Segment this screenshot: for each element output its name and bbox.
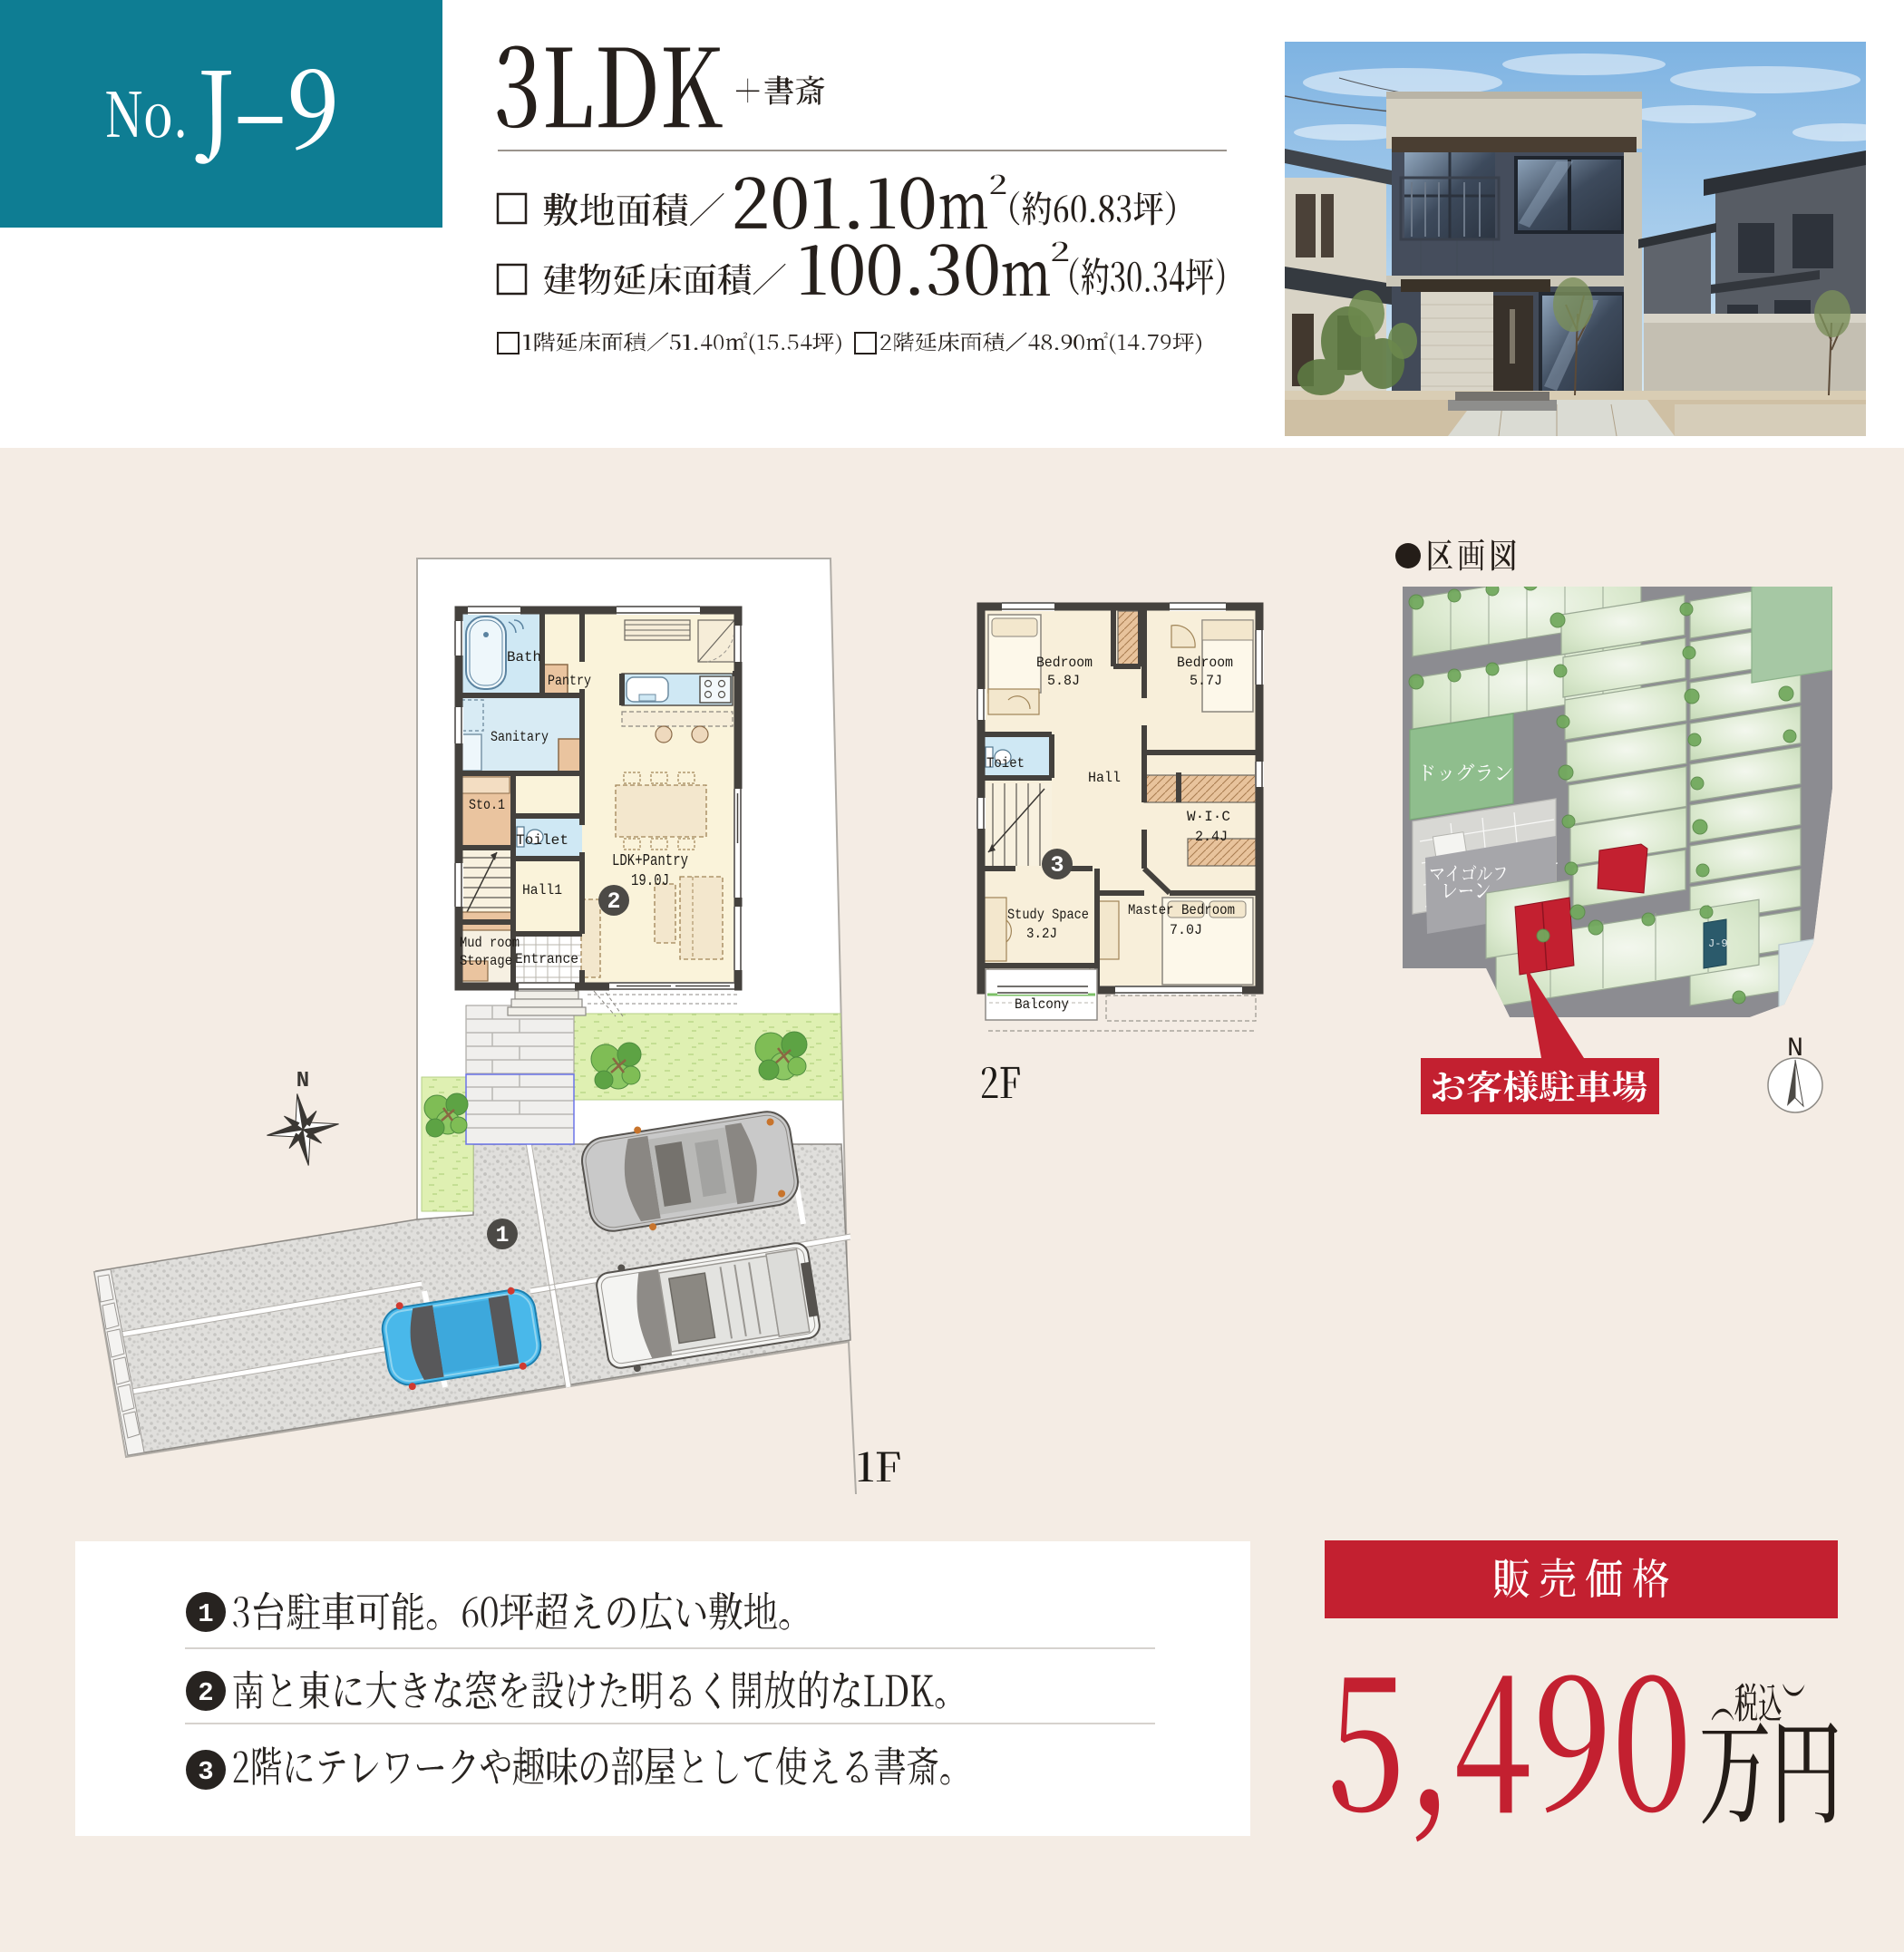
svg-text:J-9: J-9 (1708, 937, 1728, 950)
svg-text:1: 1 (198, 1599, 213, 1629)
svg-text:5.7J: 5.7J (1190, 673, 1222, 689)
svg-text:1: 1 (495, 1222, 509, 1248)
svg-text:3: 3 (198, 1757, 213, 1787)
svg-text:Storage: Storage (460, 953, 512, 969)
svg-text:Hall: Hall (1088, 770, 1121, 786)
svg-text:Hall1: Hall1 (522, 882, 562, 898)
svg-text:Master Bedroom: Master Bedroom (1128, 902, 1235, 918)
svg-text:Mud room: Mud room (460, 935, 520, 951)
svg-text:Sto.1: Sto.1 (469, 797, 505, 813)
svg-text:N: N (1787, 1034, 1803, 1064)
svg-text:3: 3 (1050, 852, 1064, 879)
svg-text:Bath: Bath (507, 649, 541, 665)
svg-text:Toiet: Toiet (986, 755, 1025, 772)
svg-text:19.0J: 19.0J (631, 872, 669, 890)
svg-text:Sanitary: Sanitary (491, 729, 549, 745)
svg-text:Bedroom: Bedroom (1036, 655, 1093, 671)
svg-text:3.2J: 3.2J (1026, 926, 1057, 942)
svg-text:LDK+Pantry: LDK+Pantry (612, 852, 688, 870)
svg-text:Toilet: Toilet (516, 832, 568, 849)
svg-text:Study Space: Study Space (1007, 907, 1089, 923)
svg-text:2: 2 (198, 1678, 213, 1708)
svg-text:Bedroom: Bedroom (1177, 655, 1233, 671)
svg-text:2.4J: 2.4J (1195, 829, 1228, 845)
svg-text:5.8J: 5.8J (1047, 673, 1080, 689)
svg-text:N: N (296, 1069, 309, 1093)
svg-text:Balcony: Balcony (1015, 996, 1069, 1013)
svg-text:2: 2 (607, 889, 620, 915)
svg-text:Pantry: Pantry (548, 673, 591, 689)
svg-text:Entrance: Entrance (515, 951, 578, 967)
svg-text:W·I·C: W·I·C (1187, 809, 1230, 825)
svg-text:7.0J: 7.0J (1170, 922, 1202, 938)
